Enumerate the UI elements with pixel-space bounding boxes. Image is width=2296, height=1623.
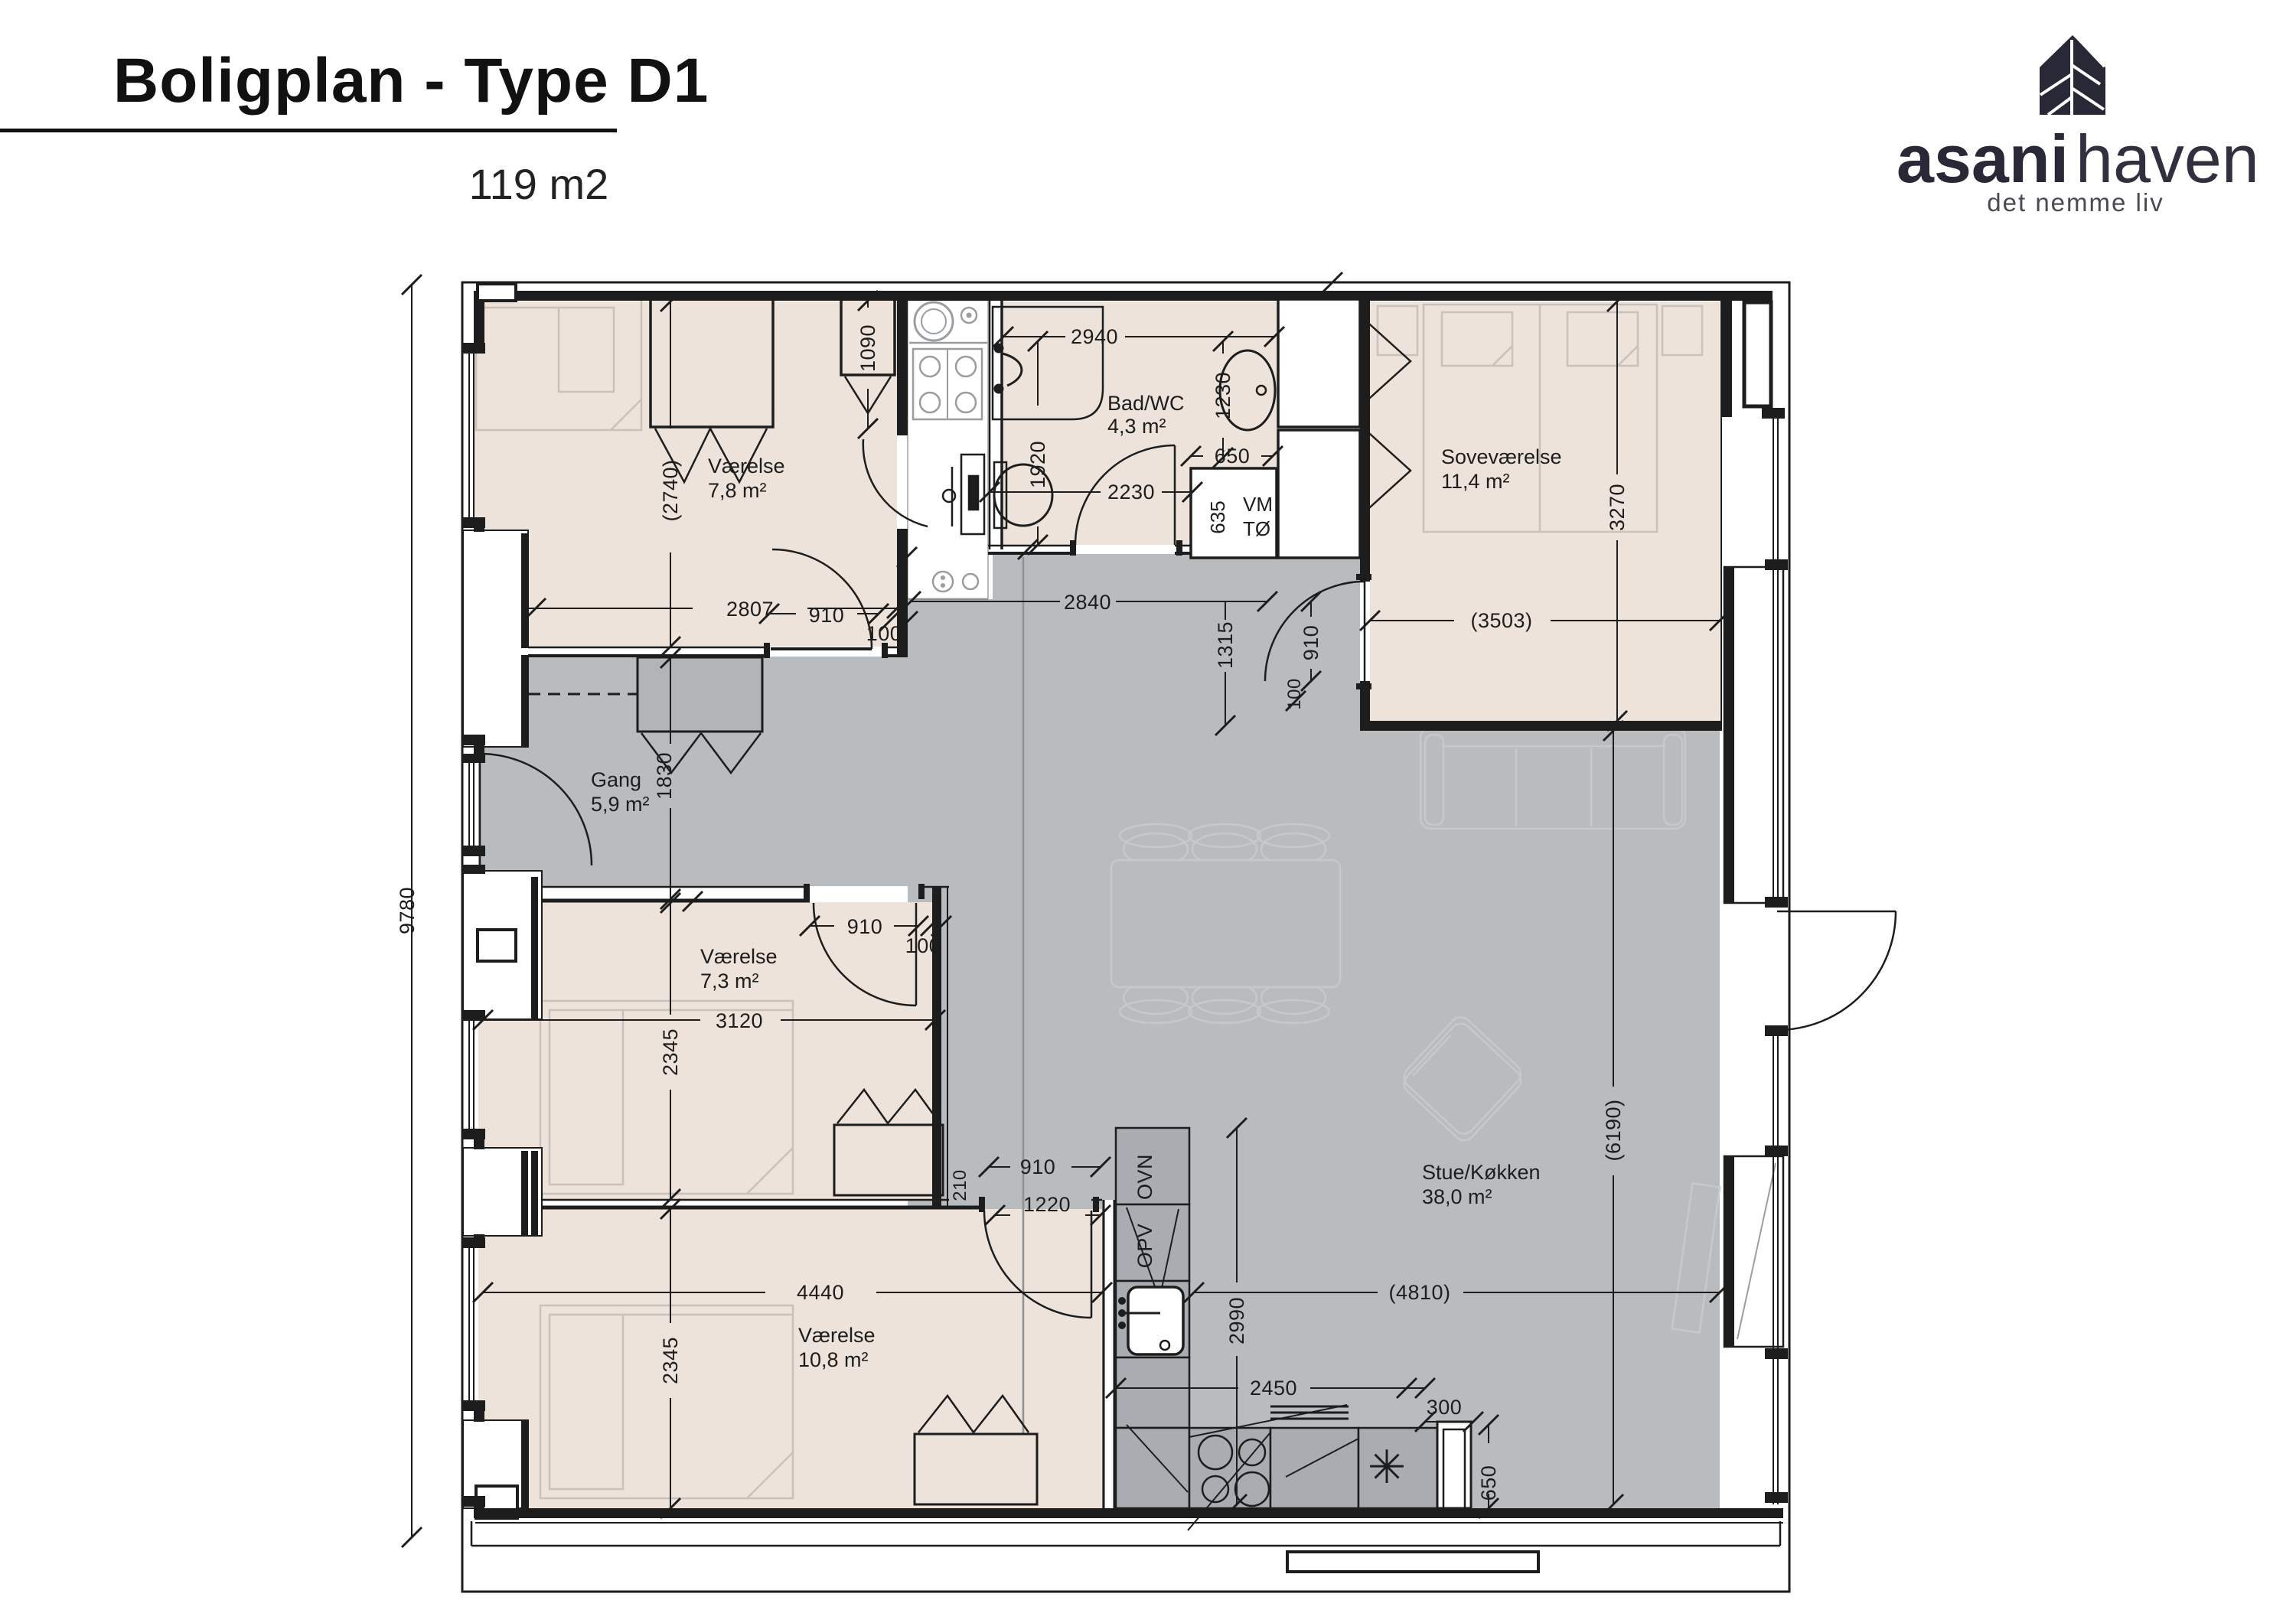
svg-text:210: 210 bbox=[950, 1169, 970, 1201]
svg-text:1220: 1220 bbox=[1023, 1193, 1071, 1216]
svg-text:650: 650 bbox=[1477, 1465, 1500, 1501]
svg-text:100: 100 bbox=[1284, 678, 1305, 710]
svg-text:(4810): (4810) bbox=[1388, 1281, 1450, 1304]
svg-text:2840: 2840 bbox=[1064, 591, 1111, 614]
svg-text:9780: 9780 bbox=[396, 887, 419, 934]
svg-text:300: 300 bbox=[1427, 1396, 1463, 1419]
svg-text:(3503): (3503) bbox=[1470, 609, 1532, 632]
svg-text:Værelse: Værelse bbox=[708, 455, 785, 477]
svg-text:1920: 1920 bbox=[1026, 441, 1049, 488]
svg-text:Boligplan - Type D1: Boligplan - Type D1 bbox=[113, 46, 709, 116]
svg-text:635: 635 bbox=[1206, 500, 1229, 533]
svg-text:2345: 2345 bbox=[659, 1337, 682, 1384]
svg-text:OPV: OPV bbox=[1133, 1224, 1156, 1269]
svg-text:119 m2: 119 m2 bbox=[469, 160, 609, 208]
svg-text:910: 910 bbox=[809, 604, 845, 627]
svg-text:2450: 2450 bbox=[1250, 1377, 1297, 1400]
svg-text:910: 910 bbox=[847, 915, 883, 938]
svg-text:VM: VM bbox=[1243, 493, 1273, 516]
svg-text:Soveværelse: Soveværelse bbox=[1441, 445, 1562, 468]
svg-text:7,8 m²: 7,8 m² bbox=[708, 479, 767, 502]
svg-text:100: 100 bbox=[905, 934, 941, 957]
svg-text:Gang: Gang bbox=[591, 768, 641, 791]
svg-text:OVN: OVN bbox=[1133, 1154, 1156, 1200]
svg-text:650: 650 bbox=[1215, 445, 1251, 468]
svg-text:38,0 m²: 38,0 m² bbox=[1422, 1185, 1492, 1208]
svg-text:4440: 4440 bbox=[797, 1281, 844, 1304]
svg-text:3270: 3270 bbox=[1606, 484, 1629, 531]
svg-text:haven: haven bbox=[2076, 121, 2259, 197]
svg-text:2940: 2940 bbox=[1071, 325, 1118, 348]
svg-text:4,3 m²: 4,3 m² bbox=[1107, 415, 1166, 438]
svg-text:(2740): (2740) bbox=[659, 459, 682, 521]
svg-text:1230: 1230 bbox=[1212, 372, 1234, 419]
svg-text:910: 910 bbox=[1300, 625, 1322, 661]
svg-text:Bad/WC: Bad/WC bbox=[1107, 392, 1185, 415]
svg-text:2345: 2345 bbox=[659, 1028, 682, 1076]
svg-text:Værelse: Værelse bbox=[798, 1324, 876, 1347]
svg-text:Stue/Køkken: Stue/Køkken bbox=[1422, 1161, 1541, 1184]
svg-text:(6190): (6190) bbox=[1602, 1099, 1625, 1161]
svg-text:2807: 2807 bbox=[726, 598, 774, 621]
svg-text:Værelse: Værelse bbox=[700, 945, 778, 968]
svg-text:2990: 2990 bbox=[1225, 1297, 1248, 1344]
svg-text:3120: 3120 bbox=[716, 1009, 763, 1032]
svg-text:2230: 2230 bbox=[1107, 481, 1155, 504]
svg-text:✳: ✳ bbox=[1368, 1442, 1406, 1493]
svg-text:11,4 m²: 11,4 m² bbox=[1441, 470, 1510, 493]
svg-text:det nemme liv: det nemme liv bbox=[1987, 188, 2164, 217]
svg-text:1830: 1830 bbox=[653, 752, 676, 800]
svg-text:910: 910 bbox=[1020, 1155, 1056, 1178]
svg-text:1090: 1090 bbox=[856, 324, 879, 372]
svg-text:5,9 m²: 5,9 m² bbox=[591, 793, 650, 816]
svg-text:asani: asani bbox=[1896, 121, 2069, 197]
svg-text:7,3 m²: 7,3 m² bbox=[700, 970, 759, 992]
svg-text:1315: 1315 bbox=[1214, 621, 1237, 669]
svg-text:TØ: TØ bbox=[1243, 517, 1270, 540]
svg-text:100: 100 bbox=[866, 622, 902, 645]
svg-text:10,8 m²: 10,8 m² bbox=[798, 1348, 869, 1371]
